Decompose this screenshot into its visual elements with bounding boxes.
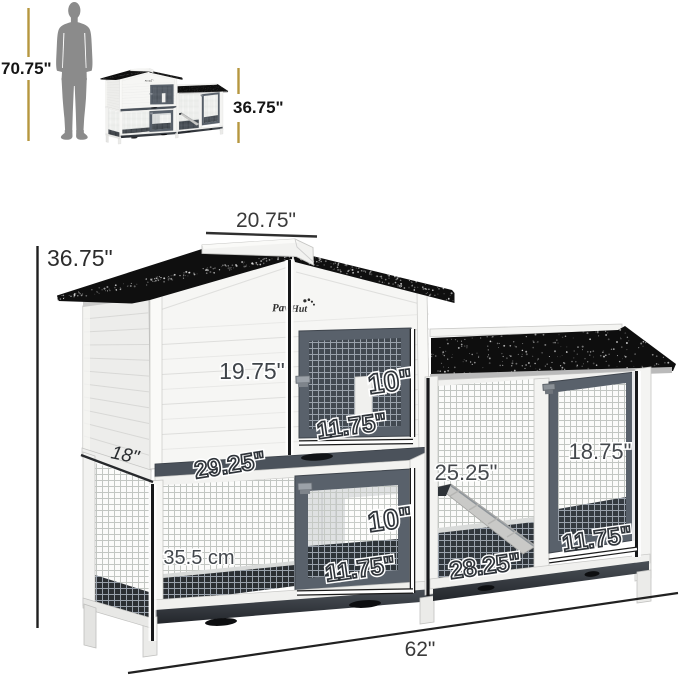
svg-text:62": 62" [405, 638, 436, 661]
svg-text:18.75": 18.75" [569, 439, 632, 464]
svg-text:10": 10" [366, 363, 414, 400]
svg-text:10": 10" [366, 501, 414, 538]
svg-text:35.5 cm: 35.5 cm [163, 547, 234, 569]
svg-text:36.75": 36.75" [233, 98, 284, 117]
svg-text:70.75": 70.75" [1, 59, 52, 78]
svg-text:20.75": 20.75" [236, 209, 296, 232]
svg-text:25.25": 25.25" [435, 460, 498, 485]
svg-text:19.75": 19.75" [219, 358, 285, 384]
svg-text:36.75": 36.75" [47, 245, 113, 271]
